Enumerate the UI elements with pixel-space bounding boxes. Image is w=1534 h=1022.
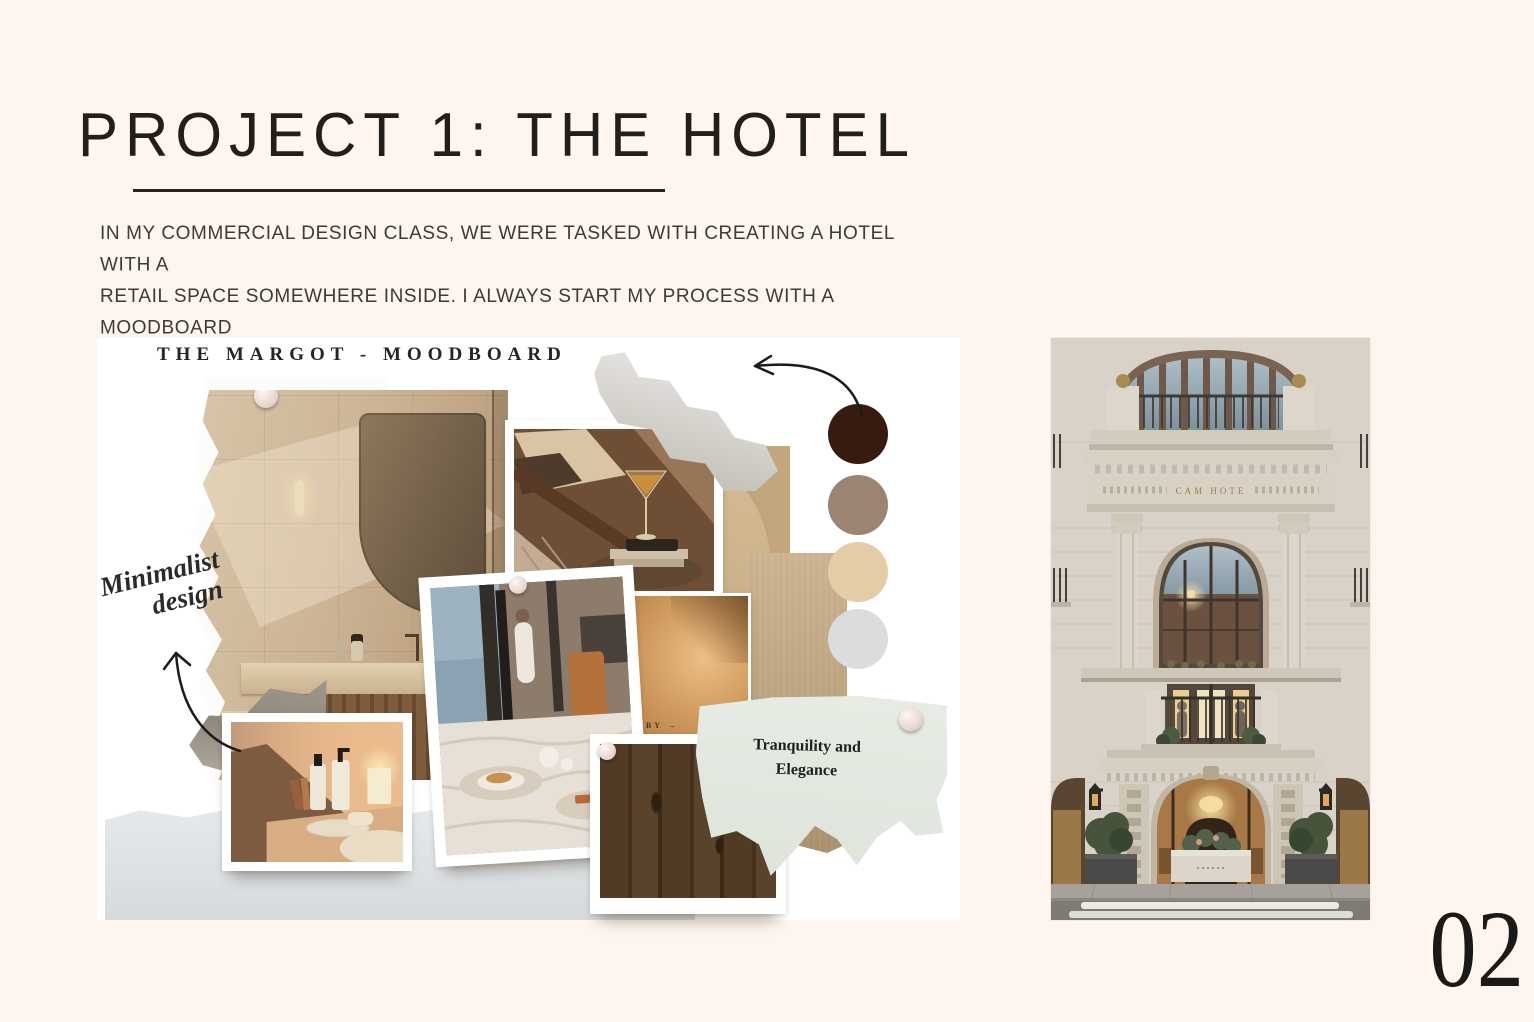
title-underline <box>133 189 665 192</box>
hotel-facade-photo: CAM HOTE <box>1051 338 1370 920</box>
palette-swatch <box>828 475 888 535</box>
faucet <box>416 634 419 661</box>
page-title: PROJECT 1: THE HOTEL <box>78 99 916 171</box>
toiletries-illustration <box>231 722 403 862</box>
note-text: Tranquility and Elegance <box>695 732 918 786</box>
soap-bottle <box>336 639 346 661</box>
palette-swatch <box>828 609 888 669</box>
pin-icon <box>598 742 616 760</box>
annotation-arrow-icon <box>152 633 252 758</box>
page-number: 02 <box>1404 886 1524 1013</box>
wall-sconce <box>295 480 304 516</box>
pump-bottle <box>351 634 363 661</box>
pin-icon <box>898 707 923 732</box>
toiletries-image <box>231 722 403 862</box>
palette-arrow-icon <box>727 338 877 428</box>
hotel-facade-illustration: CAM HOTE <box>1051 338 1370 920</box>
portfolio-page: PROJECT 1: THE HOTEL IN MY COMMERCIAL DE… <box>0 0 1534 1022</box>
intro-line: IN MY COMMERCIAL DESIGN CLASS, WE WERE T… <box>100 217 920 280</box>
palette-swatch <box>828 542 888 602</box>
lobby-shadow <box>671 596 748 663</box>
moodboard-canvas: THE MARGOT - MOODBOARD <box>97 338 960 920</box>
moodboard-title: THE MARGOT - MOODBOARD <box>157 344 567 366</box>
hotel-sign-text: CAM HOTE <box>1176 486 1247 496</box>
intro-line: RETAIL SPACE SOMEWHERE INSIDE. I ALWAYS … <box>100 281 920 344</box>
